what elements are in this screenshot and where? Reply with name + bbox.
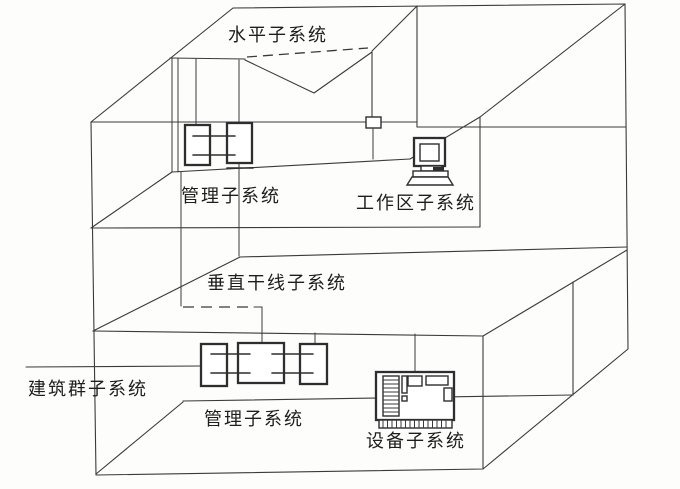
upper-patch-panel-group xyxy=(185,123,253,168)
equipment-icon xyxy=(376,372,454,428)
upper-floor-diagonal xyxy=(91,172,172,228)
horizontal-cable-dashed xyxy=(247,48,368,57)
monitor-screen xyxy=(420,144,439,161)
label-vertical-backbone-subsystem: 垂直干线子系统 xyxy=(207,273,347,293)
midband-structure xyxy=(93,247,627,343)
upper-floor-structure xyxy=(91,4,626,306)
equipment-comb-teeth xyxy=(383,420,446,428)
patch-panel-right xyxy=(227,123,252,163)
equipment-square xyxy=(402,396,407,401)
midband-back-edge xyxy=(240,247,627,257)
disk-slot xyxy=(433,167,444,171)
lower-panel-2 xyxy=(238,343,284,383)
label-management-subsystem-upper: 管理子系统 xyxy=(181,186,281,206)
campus-subsystem-line xyxy=(26,366,201,367)
diagram-canvas: 水平子系统 管理子系统 工作区子系统 垂直干线子系统 建筑群子系统 管理子系统 … xyxy=(0,0,680,489)
computer-base xyxy=(407,177,453,185)
label-equipment-subsystem: 设备子系统 xyxy=(366,431,466,451)
upper-floor-front-edge xyxy=(91,227,480,228)
back-wall-top-edge xyxy=(170,58,245,59)
label-horizontal-subsystem: 水平子系统 xyxy=(228,25,328,45)
patch-panel-left xyxy=(185,125,210,165)
lower-panel-3 xyxy=(300,344,327,384)
cabling-diagram: 水平子系统 管理子系统 工作区子系统 垂直干线子系统 建筑群子系统 管理子系统 … xyxy=(0,0,680,489)
system-unit xyxy=(413,171,448,177)
lower-panel-1 xyxy=(201,344,227,386)
lower-floor-diagonal xyxy=(96,402,183,474)
roof-cut-valley xyxy=(245,52,372,93)
lower-patch-panel-group xyxy=(201,343,327,386)
backbone-elbow xyxy=(254,307,262,343)
label-management-subsystem-lower: 管理子系统 xyxy=(204,409,304,429)
roof-underside-diagonal xyxy=(480,4,625,117)
label-work-area-subsystem: 工作区子系统 xyxy=(356,193,476,213)
equipment-bar xyxy=(402,376,407,393)
equipment-port-2 xyxy=(426,376,448,385)
label-campus-subsystem: 建筑群子系统 xyxy=(28,379,148,399)
computer-icon xyxy=(407,138,453,185)
wall-outlet-icon xyxy=(366,117,381,128)
roof-cut-right-edge xyxy=(372,6,417,51)
equipment-port-3 xyxy=(444,388,452,401)
midband-diagonal xyxy=(93,257,240,331)
equipment-port-1 xyxy=(408,376,422,386)
midband-bottom-edge xyxy=(93,331,483,336)
work-area-outlet xyxy=(366,117,381,159)
midband-right-diagonal xyxy=(483,250,627,336)
roof-opening xyxy=(170,6,417,117)
